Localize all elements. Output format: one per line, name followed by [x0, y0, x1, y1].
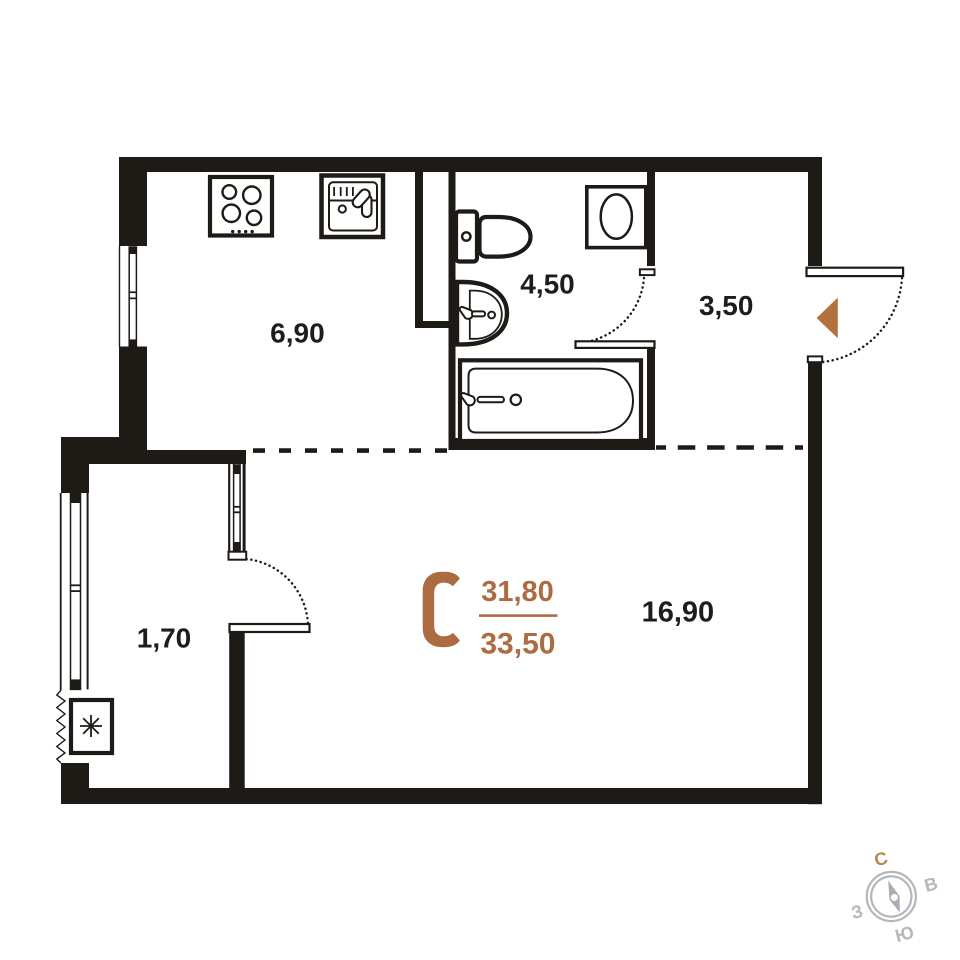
svg-text:6,90: 6,90 — [270, 318, 325, 349]
svg-text:31,80: 31,80 — [481, 576, 554, 608]
svg-text:16,90: 16,90 — [642, 597, 715, 629]
svg-text:4,50: 4,50 — [520, 268, 575, 299]
svg-text:33,50: 33,50 — [480, 627, 555, 660]
svg-text:1,70: 1,70 — [137, 623, 192, 654]
svg-text:3,50: 3,50 — [699, 290, 754, 321]
